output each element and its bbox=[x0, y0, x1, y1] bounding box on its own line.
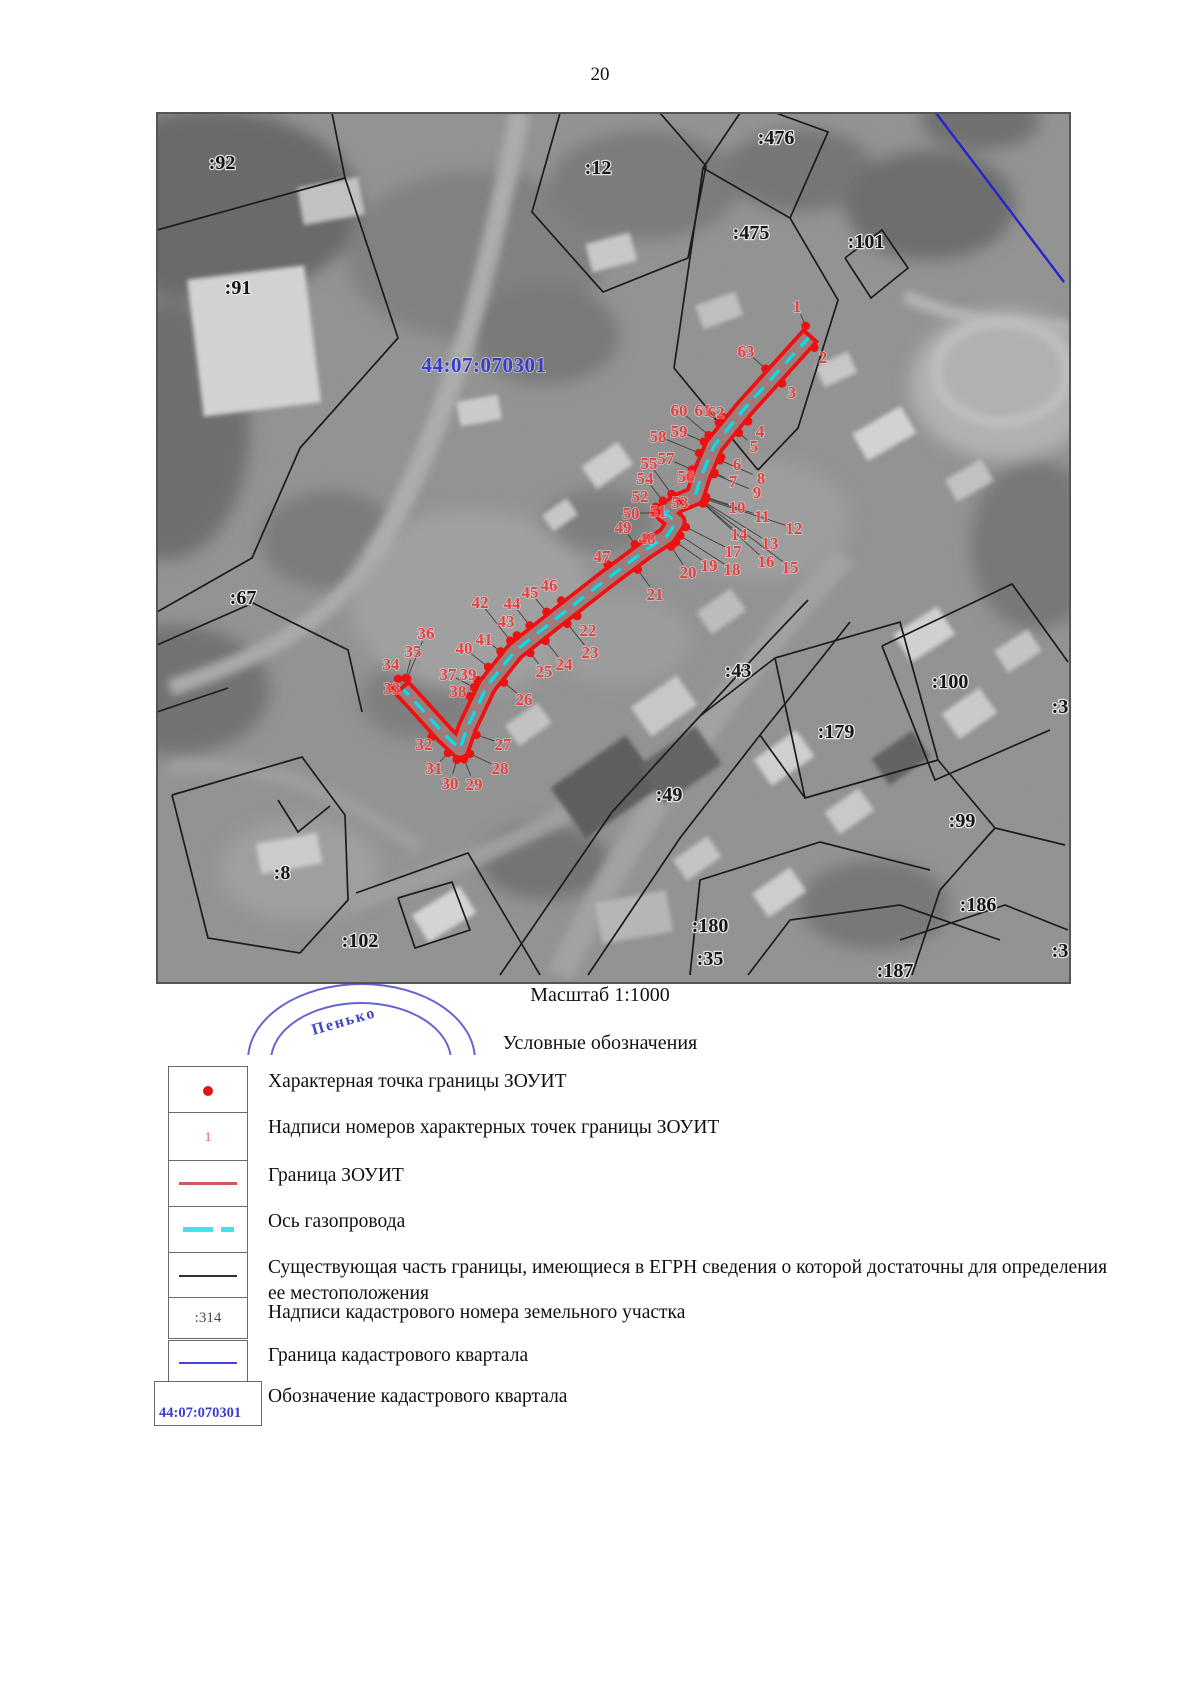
zouit-point-number-56: 56 bbox=[678, 467, 695, 486]
parcel-label: :476 bbox=[758, 127, 795, 149]
parcel-label: :3 bbox=[1052, 940, 1069, 962]
zouit-point-1 bbox=[801, 322, 810, 331]
parcel-label: :180 bbox=[692, 915, 729, 937]
zouit-point-number-24: 24 bbox=[556, 655, 574, 674]
zouit-point-number-52: 52 bbox=[632, 487, 649, 506]
zouit-point-number-58: 58 bbox=[650, 427, 667, 446]
parcel-label: :49 bbox=[656, 784, 683, 806]
legend-point-number-icon: 1 bbox=[205, 1129, 212, 1145]
zouit-point-number-47: 47 bbox=[594, 547, 612, 566]
parcel-label: :3 bbox=[1052, 696, 1069, 718]
zouit-point-30 bbox=[453, 755, 462, 764]
zouit-point-number-10: 10 bbox=[729, 498, 746, 517]
parcel-label: :12 bbox=[585, 157, 612, 179]
zouit-point-number-63: 63 bbox=[738, 342, 755, 361]
zouit-point-number-1: 1 bbox=[793, 297, 802, 316]
zouit-point-number-51: 51 bbox=[650, 502, 667, 521]
zouit-point-number-26: 26 bbox=[516, 690, 533, 709]
zouit-point-45 bbox=[542, 608, 551, 617]
zouit-point-3 bbox=[778, 379, 787, 388]
zouit-point-number-45: 45 bbox=[522, 583, 539, 602]
zouit-point-2 bbox=[810, 343, 819, 352]
parcel-label: :35 bbox=[697, 948, 724, 970]
zouit-point-25 bbox=[526, 649, 535, 658]
legend-symbol-box-black_line bbox=[168, 1252, 248, 1299]
parcel-label: :102 bbox=[342, 930, 379, 952]
zouit-point-number-5: 5 bbox=[750, 437, 759, 456]
legend-symbol-box-point_number: 1 bbox=[168, 1112, 248, 1161]
legend-cadastral-number-icon: :314 bbox=[195, 1310, 222, 1327]
parcel-label: :92 bbox=[209, 152, 236, 174]
zouit-point-number-39: 39 bbox=[460, 665, 477, 684]
zouit-point-number-34: 34 bbox=[383, 655, 401, 674]
legend-egrn-line-icon bbox=[179, 1275, 237, 1277]
zouit-point-number-35: 35 bbox=[405, 642, 422, 661]
zouit-point-21 bbox=[633, 565, 642, 574]
legend-row-label-6: Надписи кадастрового номера земельного у… bbox=[268, 1300, 1118, 1326]
legend-symbol-box-red_line bbox=[168, 1160, 248, 1207]
zouit-point-4 bbox=[744, 417, 753, 426]
legend-quarter-number-text: 44:07:070301 bbox=[159, 1405, 241, 1422]
quarter-number-on-map: 44:07:070301 bbox=[422, 353, 547, 377]
zouit-point-58 bbox=[695, 449, 704, 458]
parcel-label: :91 bbox=[225, 277, 252, 299]
zouit-point-number-9: 9 bbox=[753, 483, 762, 502]
zouit-point-number-17: 17 bbox=[725, 542, 743, 561]
zouit-point-number-22: 22 bbox=[580, 621, 597, 640]
legend-symbol-box-quarter_designation: 44:07:070301 bbox=[154, 1381, 262, 1426]
parcel-label: :8 bbox=[274, 862, 291, 884]
zouit-point-number-23: 23 bbox=[582, 643, 599, 662]
zouit-point-number-13: 13 bbox=[762, 534, 779, 553]
parcel-label: :100 bbox=[932, 671, 969, 693]
zouit-point-36 bbox=[403, 674, 412, 683]
zouit-point-60 bbox=[704, 431, 713, 440]
document-page: 20 bbox=[0, 0, 1200, 1697]
zouit-point-number-50: 50 bbox=[623, 504, 640, 523]
zouit-point-27 bbox=[472, 730, 481, 739]
satellite-texture bbox=[157, 113, 1070, 983]
zouit-point-number-40: 40 bbox=[456, 639, 473, 658]
legend-symbol-box-cyan_dashed bbox=[168, 1206, 248, 1253]
zouit-point-number-59: 59 bbox=[671, 422, 688, 441]
zouit-point-number-11: 11 bbox=[754, 507, 770, 526]
zouit-point-number-27: 27 bbox=[495, 735, 513, 754]
legend-title: Условные обозначения bbox=[0, 1032, 1200, 1055]
zouit-point-63 bbox=[761, 364, 770, 373]
zouit-point-number-33: 33 bbox=[384, 679, 401, 698]
legend-row-label-4: Ось газопровода bbox=[268, 1209, 1118, 1235]
parcel-label: :186 bbox=[960, 894, 997, 916]
quarter-number-label: 44:07:070301 bbox=[422, 353, 547, 377]
legend-gas-axis-icon bbox=[183, 1227, 234, 1232]
page-number: 20 bbox=[0, 64, 1200, 86]
zouit-point-16 bbox=[699, 499, 708, 508]
zouit-point-number-44: 44 bbox=[504, 594, 522, 613]
parcel-label: :43 bbox=[725, 660, 752, 682]
zouit-point-20 bbox=[667, 542, 676, 551]
parcel-label: :179 bbox=[818, 721, 855, 743]
legend-row-label-8: Обозначение кадастрового квартала bbox=[268, 1384, 1118, 1410]
zouit-point-number-28: 28 bbox=[492, 759, 509, 778]
zouit-point-24 bbox=[541, 637, 550, 646]
zouit-point-number-30: 30 bbox=[442, 774, 459, 793]
zouit-point-number-18: 18 bbox=[724, 560, 741, 579]
zouit-point-number-21: 21 bbox=[647, 585, 664, 604]
zouit-point-9 bbox=[710, 470, 719, 479]
zouit-point-number-25: 25 bbox=[536, 662, 553, 681]
zouit-point-23 bbox=[563, 619, 572, 628]
legend-point-icon bbox=[203, 1086, 213, 1096]
zouit-point-number-20: 20 bbox=[680, 563, 697, 582]
zouit-point-number-46: 46 bbox=[541, 576, 558, 595]
zouit-point-number-43: 43 bbox=[498, 612, 515, 631]
zouit-point-5 bbox=[735, 429, 744, 438]
legend-quarter-line-icon bbox=[179, 1362, 237, 1364]
zouit-point-31 bbox=[444, 749, 453, 758]
legend-row-label-2: Надписи номеров характерных точек границ… bbox=[268, 1115, 1118, 1141]
zouit-point-number-19: 19 bbox=[701, 556, 718, 575]
zouit-point-number-53: 53 bbox=[672, 493, 689, 512]
zouit-point-number-62: 62 bbox=[708, 403, 725, 422]
legend-symbol-box-cadastral_number: :314 bbox=[168, 1297, 248, 1339]
zouit-point-number-38: 38 bbox=[450, 682, 467, 701]
zouit-point-number-57: 57 bbox=[658, 449, 676, 468]
cadastral-map: 1234567891011121314151617181920212223242… bbox=[157, 113, 1070, 983]
zouit-point-40 bbox=[484, 663, 493, 672]
zouit-point-number-29: 29 bbox=[466, 775, 483, 794]
zouit-point-number-7: 7 bbox=[729, 472, 738, 491]
zouit-point-number-12: 12 bbox=[786, 519, 803, 538]
legend-symbol-box-point bbox=[168, 1066, 248, 1115]
zouit-point-43 bbox=[513, 631, 522, 640]
zouit-point-number-36: 36 bbox=[418, 624, 435, 643]
parcel-label: :187 bbox=[877, 960, 914, 982]
zouit-point-number-2: 2 bbox=[819, 348, 828, 367]
zouit-point-44 bbox=[525, 621, 534, 630]
zouit-point-number-31: 31 bbox=[426, 759, 443, 778]
map-canvas: 1234567891011121314151617181920212223242… bbox=[157, 113, 1070, 983]
zouit-point-41 bbox=[496, 647, 505, 656]
zouit-point-number-32: 32 bbox=[416, 735, 433, 754]
zouit-point-number-48: 48 bbox=[639, 529, 656, 548]
zouit-point-number-16: 16 bbox=[758, 552, 775, 571]
zouit-point-number-55: 55 bbox=[641, 454, 658, 473]
parcel-label: :67 bbox=[230, 587, 257, 609]
zouit-point-22 bbox=[573, 612, 582, 621]
zouit-point-17 bbox=[682, 523, 691, 532]
parcel-label: :475 bbox=[733, 222, 770, 244]
zouit-point-number-15: 15 bbox=[782, 558, 799, 577]
zouit-point-26 bbox=[500, 678, 509, 687]
zouit-point-number-60: 60 bbox=[671, 401, 688, 420]
zouit-point-number-3: 3 bbox=[788, 383, 797, 402]
legend-zouit-line-icon bbox=[179, 1182, 237, 1185]
map-scale-label: Масштаб 1:1000 bbox=[0, 984, 1200, 1007]
parcel-label: :101 bbox=[848, 231, 885, 253]
zouit-point-38 bbox=[466, 692, 475, 701]
legend-row-label-3: Граница ЗОУИТ bbox=[268, 1163, 1118, 1189]
legend-row-label-1: Характерная точка границы ЗОУИТ bbox=[268, 1069, 1118, 1095]
zouit-point-number-41: 41 bbox=[476, 630, 493, 649]
legend-symbol-box-blue_line bbox=[168, 1340, 248, 1386]
zouit-point-46 bbox=[557, 596, 566, 605]
zouit-point-number-42: 42 bbox=[472, 593, 489, 612]
legend-row-label-7: Граница кадастрового квартала bbox=[268, 1343, 1118, 1369]
zouit-point-8 bbox=[716, 456, 725, 465]
parcel-label: :99 bbox=[949, 810, 976, 832]
